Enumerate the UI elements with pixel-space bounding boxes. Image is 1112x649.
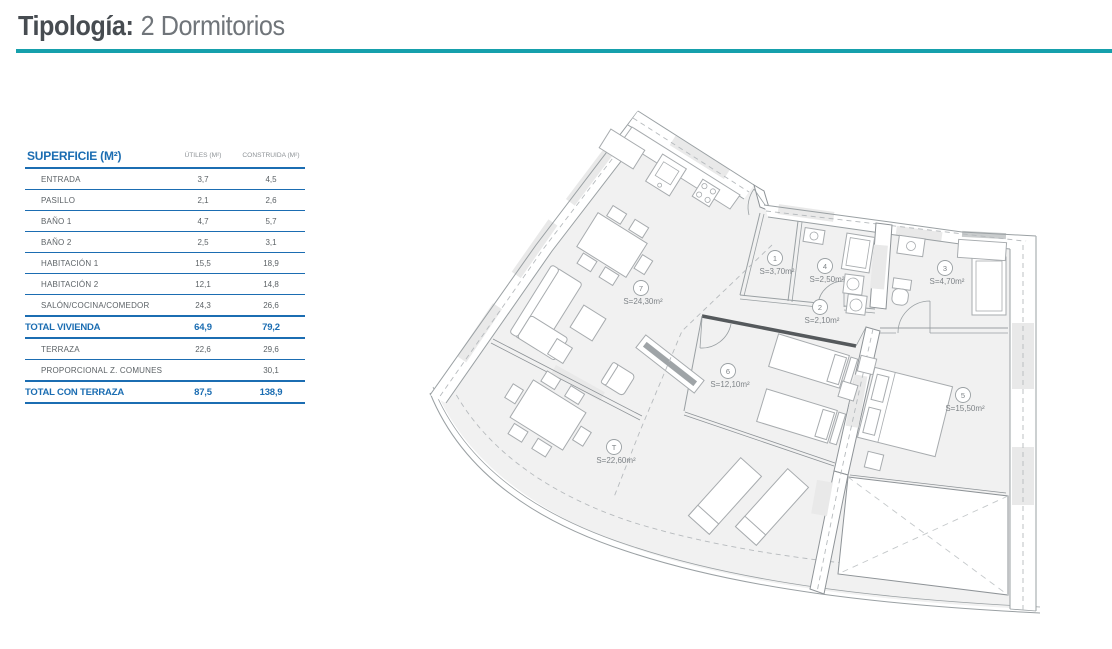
row-value: 4,5	[237, 168, 305, 190]
room-number: 7	[639, 284, 643, 293]
table-row: HABITACIÓN 115,518,9	[25, 253, 305, 274]
surface-table-title: SUPERFICIE (M²)	[25, 144, 169, 168]
room-number: 4	[823, 262, 827, 271]
table-total-row: TOTAL CON TERRAZA87,5138,9	[25, 381, 305, 403]
table-row: BAÑO 14,75,7	[25, 211, 305, 232]
table-row: PASILLO2,12,6	[25, 190, 305, 211]
row-value: 2,6	[237, 190, 305, 211]
row-value: 18,9	[237, 253, 305, 274]
page-title-label: Tipología:	[18, 10, 133, 41]
table-row: SALÓN/COCINA/COMEDOR24,326,6	[25, 295, 305, 317]
void-box	[838, 477, 1008, 595]
row-label: PROPORCIONAL Z. COMUNES	[25, 360, 169, 382]
surface-table: SUPERFICIE (M²) ÚTILES (M²) CONSTRUIDA (…	[25, 144, 305, 404]
room-number: T	[612, 443, 617, 452]
row-value: 26,6	[237, 295, 305, 317]
row-value: 138,9	[237, 381, 305, 403]
row-label: PASILLO	[25, 190, 169, 211]
row-value: 30,1	[237, 360, 305, 382]
row-label: TOTAL CON TERRAZA	[25, 381, 169, 403]
row-value: 15,5	[169, 253, 237, 274]
row-value: 3,7	[169, 168, 237, 190]
row-label: ENTRADA	[25, 168, 169, 190]
row-value: 29,6	[237, 338, 305, 360]
room-number: 1	[773, 254, 777, 263]
table-total-row: TOTAL VIVIENDA64,979,2	[25, 316, 305, 338]
table-row: PROPORCIONAL Z. COMUNES30,1	[25, 360, 305, 382]
row-label: TERRAZA	[25, 338, 169, 360]
row-value: 3,1	[237, 232, 305, 253]
row-value: 22,6	[169, 338, 237, 360]
room-area-label: S=24,30m²	[623, 297, 663, 306]
row-value: 2,5	[169, 232, 237, 253]
row-value: 14,8	[237, 274, 305, 295]
table-row: ENTRADA3,74,5	[25, 168, 305, 190]
page-title-value: 2 Dormitorios	[141, 10, 285, 41]
row-value: 87,5	[169, 381, 237, 403]
table-row: HABITACIÓN 212,114,8	[25, 274, 305, 295]
row-value: 64,9	[169, 316, 237, 338]
row-label: BAÑO 1	[25, 211, 169, 232]
row-label: TOTAL VIVIENDA	[25, 316, 169, 338]
table-row: TERRAZA22,629,6	[25, 338, 305, 360]
room-number: 5	[961, 391, 965, 400]
room-area-label: S=12,10m²	[710, 380, 750, 389]
row-value: 5,7	[237, 211, 305, 232]
room-area-label: S=3,70m²	[760, 267, 795, 276]
page-header: Tipología:2 Dormitorios	[18, 10, 1112, 42]
row-value: 2,1	[169, 190, 237, 211]
floor-plan: 7S=24,30m²1S=3,70m²4S=2,50m²3S=4,70m²2S=…	[400, 95, 1090, 640]
row-value: 12,1	[169, 274, 237, 295]
row-value	[169, 360, 237, 382]
right-facade	[1010, 236, 1036, 611]
row-value: 24,3	[169, 295, 237, 317]
row-label: HABITACIÓN 2	[25, 274, 169, 295]
brochure-page: Tipología:2 Dormitorios SUPERFICIE (M²) …	[0, 0, 1112, 649]
row-value: 4,7	[169, 211, 237, 232]
room-area-label: S=15,50m²	[945, 404, 985, 413]
room-area-label: S=4,70m²	[930, 277, 965, 286]
room-number: 6	[726, 367, 730, 376]
room-number: 2	[818, 303, 822, 312]
teal-divider	[16, 49, 1112, 53]
room-area-label: S=2,10m²	[805, 316, 840, 325]
column-header-utiles: ÚTILES (M²)	[169, 144, 237, 168]
table-row: BAÑO 22,53,1	[25, 232, 305, 253]
row-label: HABITACIÓN 1	[25, 253, 169, 274]
room-number: 3	[943, 264, 947, 273]
column-header-construida: CONSTRUIDA (M²)	[237, 144, 305, 168]
row-value: 79,2	[237, 316, 305, 338]
surface-table-header: SUPERFICIE (M²) ÚTILES (M²) CONSTRUIDA (…	[25, 144, 305, 168]
room-area-label: S=2,50m²	[810, 275, 845, 284]
page-title: Tipología:2 Dormitorios	[18, 10, 1003, 42]
row-label: BAÑO 2	[25, 232, 169, 253]
room-area-label: S=22,60m²	[596, 456, 636, 465]
row-label: SALÓN/COCINA/COMEDOR	[25, 295, 169, 317]
